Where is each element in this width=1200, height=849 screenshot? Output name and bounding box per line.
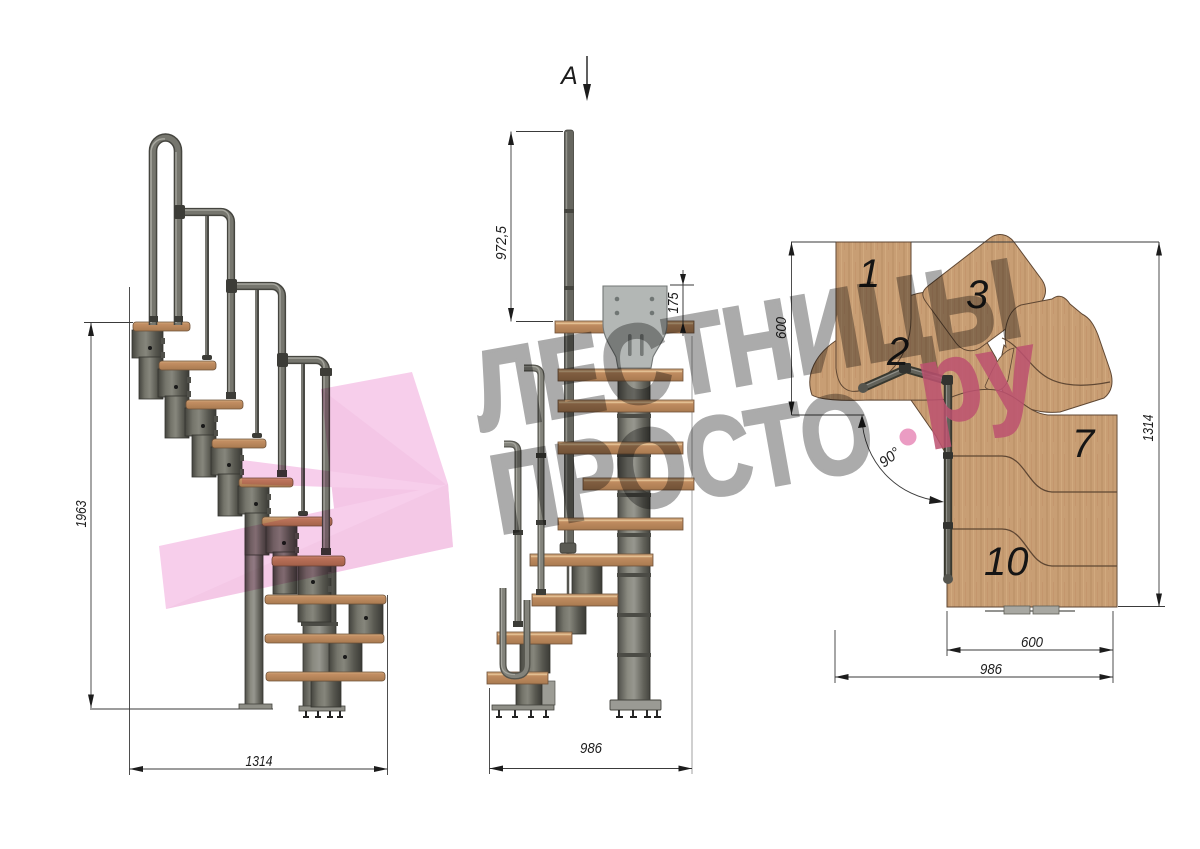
svg-text:10: 10 <box>984 540 1029 584</box>
svg-text:986: 986 <box>980 661 1003 678</box>
svg-text:600: 600 <box>1021 634 1044 651</box>
svg-text:972,5: 972,5 <box>493 225 510 260</box>
svg-text:7: 7 <box>1072 422 1096 466</box>
svg-text:986: 986 <box>580 740 603 757</box>
svg-text:ру: ру <box>907 304 1048 451</box>
svg-text:A: A <box>559 62 578 90</box>
svg-text:1314: 1314 <box>246 753 273 770</box>
svg-text:90°: 90° <box>876 444 904 471</box>
svg-text:1314: 1314 <box>1140 415 1157 442</box>
svg-text:1963: 1963 <box>73 500 90 528</box>
